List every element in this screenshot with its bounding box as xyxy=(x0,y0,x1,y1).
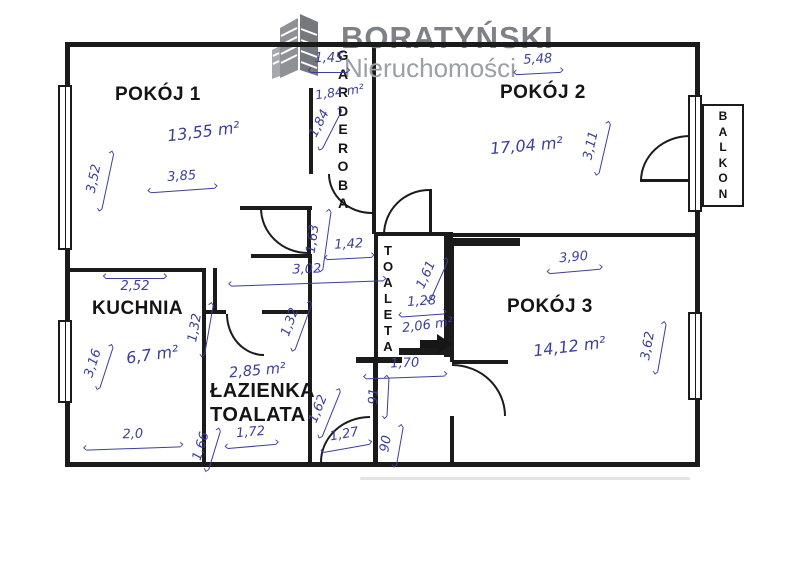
dim-arrow xyxy=(311,66,347,73)
dim-lazienka-172: 1,72 xyxy=(226,424,276,449)
wall-pokoj1-step-bottom xyxy=(251,254,311,258)
dim-pokoj1-width: 3,85 xyxy=(149,168,214,193)
dim-pokoj3-height: 3,62 xyxy=(637,321,666,372)
wall-outer-top xyxy=(65,42,700,47)
dim-kuchnia-height: 3,16 xyxy=(81,341,114,387)
dim-kuchnia-width: 2,52 xyxy=(106,272,164,293)
door-leaf-pokoj3 xyxy=(452,360,508,364)
door-arc-balkon xyxy=(640,135,690,181)
door-arc-lazienka xyxy=(226,314,264,356)
door-leaf-pokoj2 xyxy=(429,189,432,235)
dim-arrow xyxy=(106,272,164,279)
dim-pokoj2-height: 3,11 xyxy=(579,120,611,173)
balkon-room: B A L K O N xyxy=(702,104,744,207)
dim-hall-91: 91 xyxy=(367,377,390,416)
door-arc-pokoj2 xyxy=(383,189,429,235)
window-pokoj3 xyxy=(688,312,702,400)
window-kuchnia xyxy=(58,320,72,403)
dim-hall-90: 90 xyxy=(376,424,403,465)
door-arc-pokoj3 xyxy=(452,364,506,416)
pokoj3-label: POKÓJ 3 xyxy=(507,296,593,318)
balkon-label: B A L K O N xyxy=(718,109,727,202)
dim-kuchnia-door-132: 1,32 xyxy=(184,302,213,355)
door-arc-pokoj1 xyxy=(260,208,308,254)
dim-toaleta-161: 1,61 xyxy=(412,253,448,300)
pokoj1-label: POKÓJ 1 xyxy=(115,84,201,106)
dim-arrow xyxy=(381,378,390,416)
window-pokoj1 xyxy=(58,85,72,250)
dim-corridor-142: 1,42 xyxy=(326,237,371,260)
pokoj3-area: 14,12 m² xyxy=(532,333,607,361)
dim-kuchnia-bottom-20: 2,0 xyxy=(86,426,181,450)
wall-pokoj3-left-lower xyxy=(450,416,454,463)
dim-lazienka-door-132: 1,32 xyxy=(276,297,312,349)
pokoj1-area: 13,55 m² xyxy=(166,118,241,146)
dim-pokoj3-width: 3,90 xyxy=(548,249,600,274)
logo-brand: BORATYŃSKI xyxy=(341,20,554,56)
wall-outer-bottom xyxy=(65,462,700,467)
kuchnia-label: KUCHNIA xyxy=(92,298,183,320)
window-balkon-door xyxy=(688,95,702,212)
dim-pokoj1-height: 3,52 xyxy=(82,150,114,209)
lazienka-area: 2,85 m² xyxy=(228,361,286,382)
wall-pokoj3-top-thick xyxy=(450,238,520,246)
dim-pokoj2-width: 5,48 xyxy=(515,52,560,75)
pokoj2-label: POKÓJ 2 xyxy=(500,82,586,104)
scan-artifact xyxy=(360,477,690,480)
logo-tagline: Nieruchomości xyxy=(344,53,516,84)
dim-garderoba-top: 1,45 xyxy=(311,52,347,73)
dim-arrow xyxy=(516,66,560,75)
kuchnia-area: 6,7 m² xyxy=(125,341,180,367)
entrance-arrow-icon xyxy=(419,333,453,360)
wall-pokoj2-pokoj3 xyxy=(450,233,700,237)
lazienka-label: ŁAZIENKA TOALATA xyxy=(210,380,315,427)
pokoj2-area: 17,04 m² xyxy=(489,133,563,158)
dim-arrow xyxy=(327,251,371,260)
lazienka-label-line1: ŁAZIENKA xyxy=(210,380,315,404)
